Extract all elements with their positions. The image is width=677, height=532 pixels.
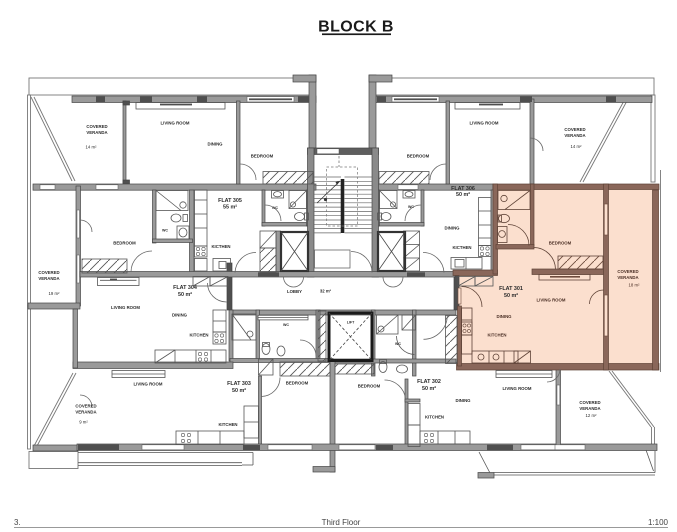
svg-text:LIVING ROOM: LIVING ROOM [503,386,532,391]
svg-text:COVERED: COVERED [75,404,96,409]
svg-text:VERANDA: VERANDA [579,406,600,411]
svg-text:KICTHEN: KICTHEN [452,245,471,250]
svg-text:FLAT 305: FLAT 305 [218,198,242,204]
svg-text:LIVING ROOM: LIVING ROOM [111,305,140,310]
svg-text:LIFT: LIFT [347,321,355,325]
svg-text:50 m²: 50 m² [504,293,518,299]
svg-text:COVERED: COVERED [564,127,585,132]
svg-text:VERANDA: VERANDA [86,130,107,135]
svg-text:BEDROOM: BEDROOM [286,381,309,386]
svg-text:BEDROOM: BEDROOM [113,241,136,246]
svg-text:BEDROOM: BEDROOM [407,154,430,159]
svg-text:50 m²: 50 m² [456,192,470,198]
svg-text:DINING: DINING [496,314,512,319]
svg-text:LOBBY: LOBBY [287,289,302,294]
svg-text:DINING: DINING [444,226,460,231]
svg-text:COVERED: COVERED [86,124,107,129]
svg-text:50 m²: 50 m² [178,292,192,298]
svg-text:KITCHEN: KITCHEN [487,333,506,338]
svg-text:32 m²: 32 m² [320,289,332,294]
svg-text:VERANDA: VERANDA [564,133,585,138]
svg-text:WC: WC [272,206,278,210]
svg-text:50 m²: 50 m² [422,386,436,392]
svg-text:BEDROOM: BEDROOM [358,384,381,389]
svg-text:LIVING ROOM: LIVING ROOM [470,121,499,126]
svg-text:50 m²: 50 m² [232,388,246,394]
svg-text:18 m²: 18 m² [629,283,641,288]
svg-text:KITCHEN: KITCHEN [218,422,237,427]
svg-text:Third Floor: Third Floor [322,518,361,527]
svg-text:LIVING ROOM: LIVING ROOM [537,298,566,303]
svg-text:LIVING ROOM: LIVING ROOM [134,382,163,387]
svg-text:COVERED: COVERED [579,400,600,405]
svg-text:VERANDA: VERANDA [38,276,59,281]
svg-text:VERANDA: VERANDA [617,275,638,280]
svg-text:14 m²: 14 m² [571,144,583,149]
svg-text:VERANDA: VERANDA [75,410,96,415]
svg-text:LIVING ROOM: LIVING ROOM [161,121,190,126]
svg-text:WC: WC [283,323,289,327]
svg-text:55 m²: 55 m² [223,205,237,211]
svg-text:WC: WC [162,229,168,233]
svg-text:19 m²: 19 m² [49,291,61,296]
svg-text:FLAT 303: FLAT 303 [227,381,251,387]
svg-text:COVERED: COVERED [38,270,59,275]
svg-text:BEDROOM: BEDROOM [549,241,572,246]
svg-text:KITCHEN: KITCHEN [425,415,444,420]
svg-text:DINING: DINING [172,313,188,318]
svg-text:9 m²: 9 m² [79,420,88,425]
svg-text:BLOCK B: BLOCK B [318,19,394,36]
svg-text:3.: 3. [14,518,21,527]
svg-text:1:100: 1:100 [648,518,669,527]
svg-text:FLAT 301: FLAT 301 [499,286,523,292]
svg-text:COVERED: COVERED [617,269,638,274]
svg-text:FLAT 302: FLAT 302 [417,379,441,385]
svg-text:12 m²: 12 m² [586,413,598,418]
svg-text:DINING: DINING [455,398,471,403]
svg-text:BEDROOM: BEDROOM [251,154,274,159]
svg-text:14 m²: 14 m² [86,145,98,150]
svg-text:KITCHEN: KITCHEN [189,333,208,338]
svg-text:DINING: DINING [207,142,223,147]
svg-text:KICTHEN: KICTHEN [211,244,230,249]
